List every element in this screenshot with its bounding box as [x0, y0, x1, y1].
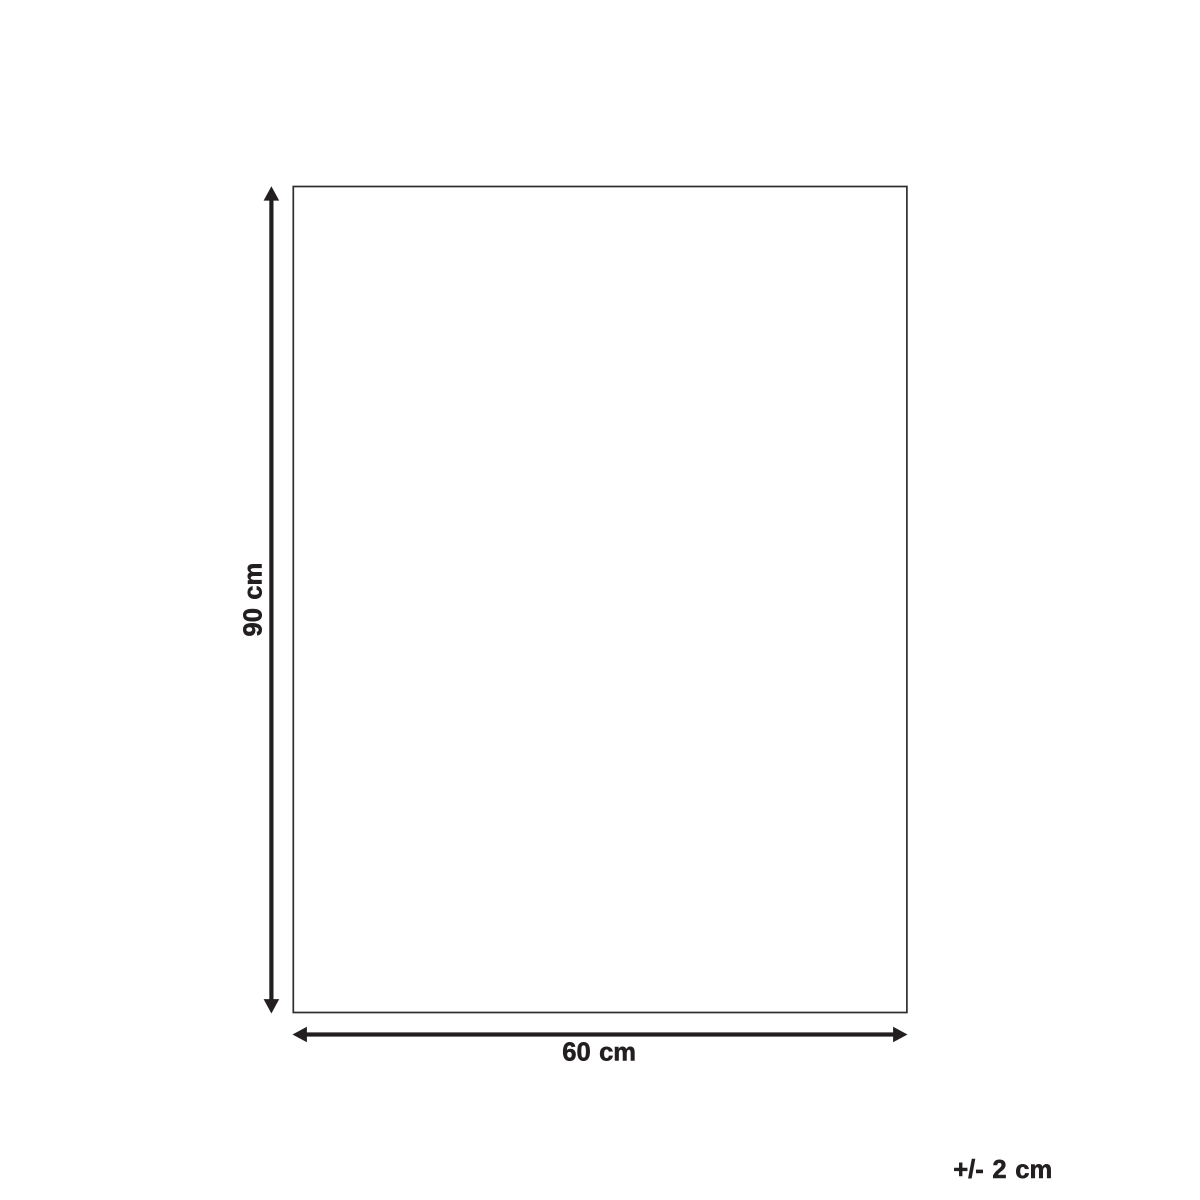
svg-text:60 cm: 60 cm: [562, 1039, 636, 1067]
svg-text:+/- 2 cm: +/- 2 cm: [953, 1156, 1052, 1184]
svg-text:90 cm: 90 cm: [239, 563, 267, 637]
